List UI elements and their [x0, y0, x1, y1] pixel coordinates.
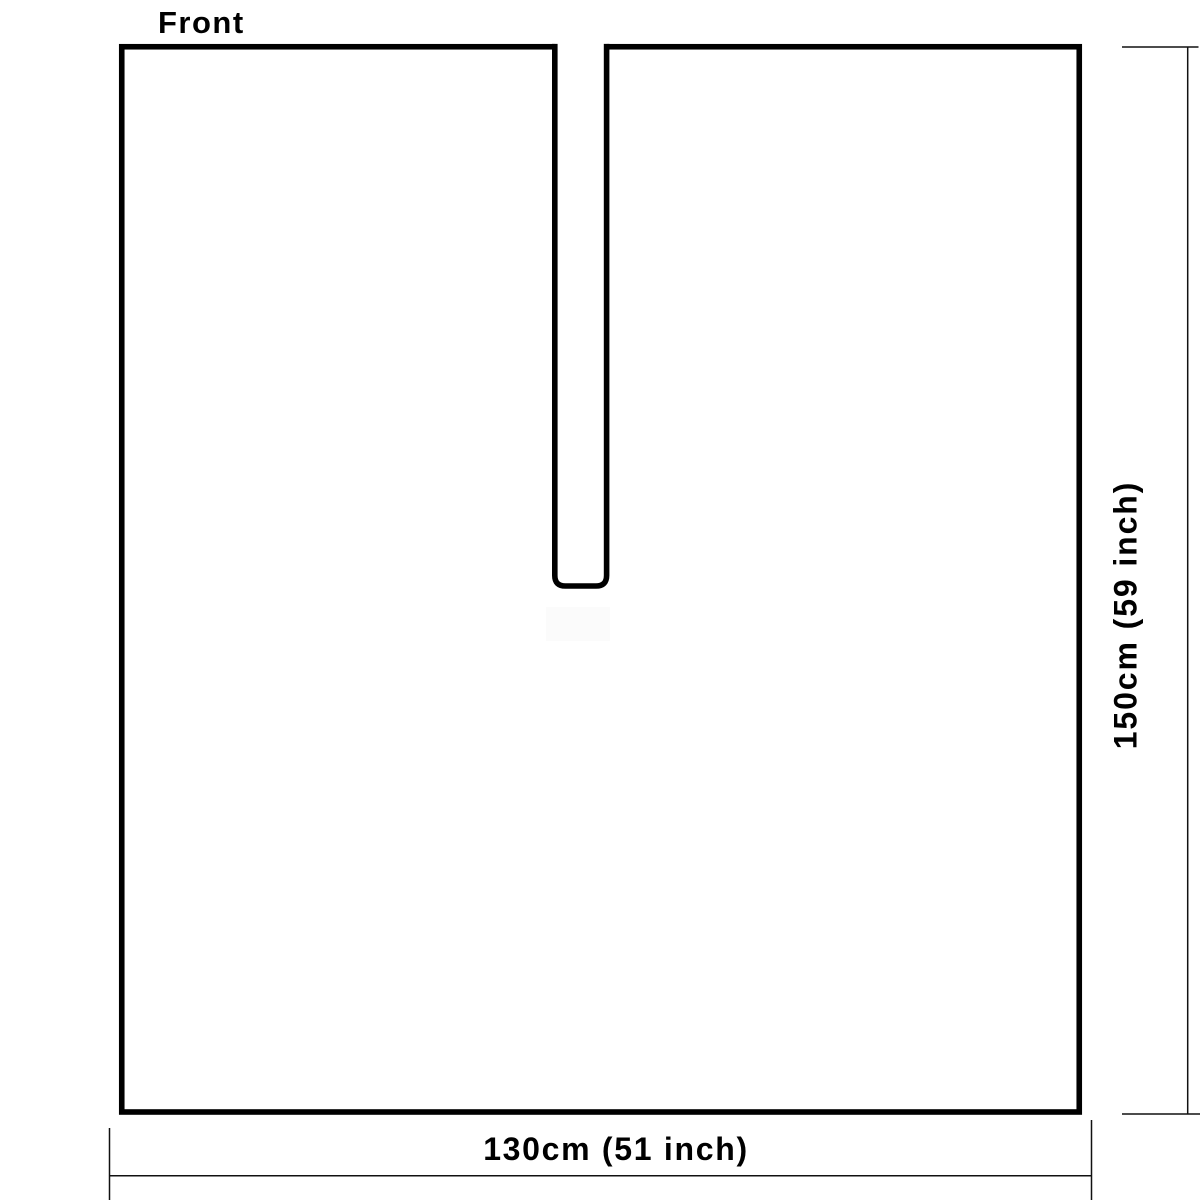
svg-text:150cm (59 inch): 150cm (59 inch) — [1108, 481, 1144, 750]
svg-text:130cm (51 inch): 130cm (51 inch) — [483, 1131, 749, 1167]
svg-text:Front: Front — [158, 5, 245, 40]
